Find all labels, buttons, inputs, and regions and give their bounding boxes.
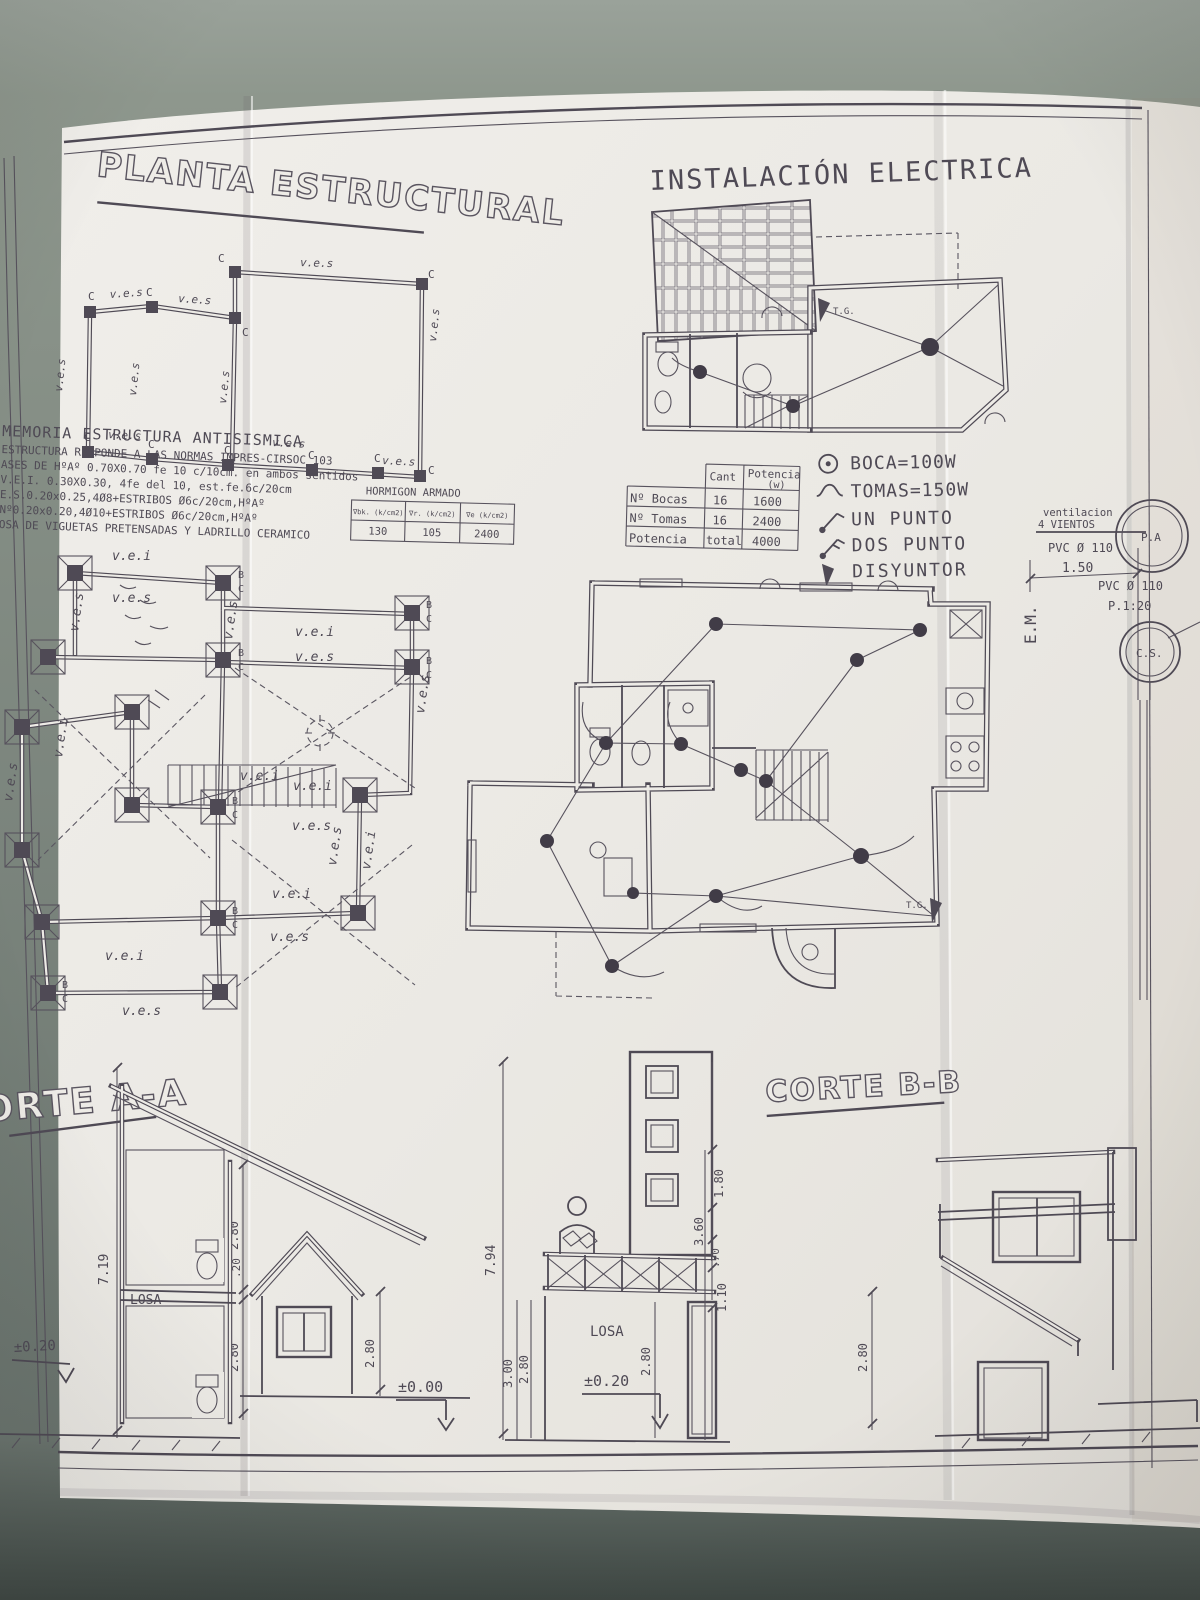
blueprint-drawing: PLANTA ESTRUCTURAL INSTALACIÓN ELECTRICA… [0,0,1200,1600]
blueprint-photo: PLANTA ESTRUCTURAL INSTALACIÓN ELECTRICA… [0,0,1200,1600]
photo-vignette [0,0,1200,1600]
